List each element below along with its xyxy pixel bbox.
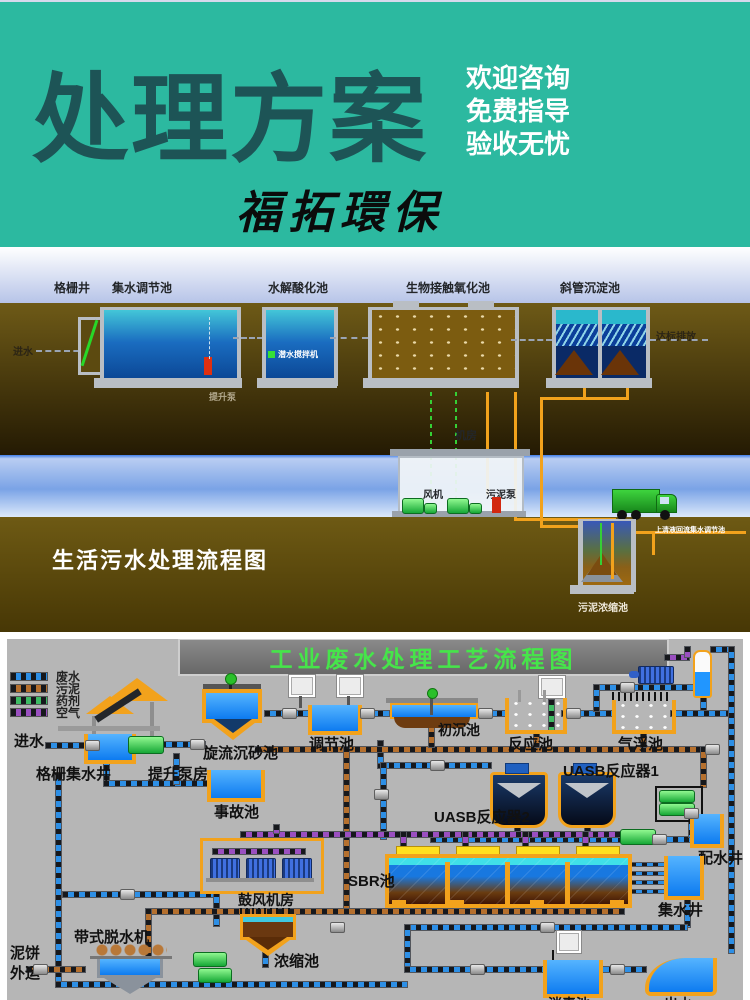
- label-collect-regulate-tank: 集水调节池: [112, 279, 172, 296]
- pipe-segment: [330, 337, 368, 339]
- sbr-leg: [450, 900, 464, 907]
- diagram1-title: 生活污水处理流程图: [52, 543, 268, 575]
- tube-media: [556, 324, 600, 346]
- collect-regulate-tank: [100, 307, 241, 386]
- label-inclined-tube-tank: 斜管沉淀池: [560, 279, 620, 296]
- pipe-segment: [233, 337, 263, 339]
- roof-slab: [390, 449, 530, 456]
- domestic-sewage-diagram: 格栅井 集水调节池 水解酸化池 生物接触氧化池 斜管沉淀池 进水 达标排放 提升…: [0, 247, 750, 632]
- sludge-pump-device: [492, 497, 501, 513]
- pipe-segment: [380, 762, 387, 840]
- sludge-feed-pump: [193, 952, 227, 967]
- header-banner: 处理方案 欢迎咨询 免费指导 验收无忧 福拓環保: [0, 0, 750, 247]
- sbr-divider: [565, 862, 570, 904]
- slogan-line: 免费指导: [466, 95, 570, 128]
- label-inlet: 进水: [14, 730, 44, 751]
- valve: [652, 834, 667, 845]
- collecting-well: [664, 856, 704, 900]
- compressor-nose: [629, 671, 639, 678]
- mixer-unit: [336, 674, 364, 698]
- dewaterer-bowl: [97, 959, 163, 978]
- uasb-cone: [565, 783, 609, 798]
- pipe-segment: [62, 891, 217, 898]
- pipe-segment: [511, 339, 552, 341]
- pipe-segment: [273, 824, 280, 834]
- saturation-column: [693, 650, 712, 698]
- lift-pump-device: [204, 357, 212, 375]
- uasb-cone: [497, 783, 541, 798]
- tank-base: [570, 585, 634, 594]
- label-cyclone: 旋流沉砂池: [203, 742, 278, 763]
- pipe-segment: [209, 317, 210, 359]
- label-accident-tank: 事故池: [214, 801, 259, 822]
- label-bio-contact-tank: 生物接触氧化池: [406, 279, 490, 296]
- tank-base: [257, 378, 337, 388]
- valve: [610, 964, 625, 975]
- truck-wheel: [660, 510, 670, 520]
- sludge-funnel: [555, 350, 593, 375]
- valve: [360, 708, 375, 719]
- legend-label: 空气: [56, 704, 80, 721]
- slogan-line: 验收无忧: [466, 128, 570, 161]
- label-flotation-tank: 气浮池: [618, 733, 663, 754]
- tank-post: [468, 301, 494, 308]
- pipe-segment: [45, 742, 89, 749]
- uasb-cap: [505, 763, 529, 774]
- valve: [374, 789, 389, 800]
- label-outflow: 出水: [664, 994, 692, 1000]
- page-title: 处理方案: [32, 40, 428, 181]
- accident-tank: [207, 770, 265, 802]
- valve: [540, 922, 555, 933]
- air-compressor: [638, 666, 674, 684]
- valve: [566, 708, 581, 719]
- feed-pump: [620, 829, 656, 845]
- flotation-tank: [612, 700, 676, 734]
- valve: [620, 682, 635, 693]
- pipe-segment: [145, 908, 625, 915]
- valve: [120, 889, 135, 900]
- sbr-leg: [610, 900, 624, 907]
- label-reaction-tank: 反应池: [508, 733, 553, 754]
- water-surface: [556, 310, 600, 324]
- label-inlet: 进水: [13, 343, 33, 358]
- diagram2-title-bar: 工业废水处理工艺流程图: [178, 638, 669, 676]
- sludge-funnel: [601, 350, 639, 375]
- platform-beam: [58, 726, 160, 731]
- pipe-segment: [630, 889, 666, 894]
- tank-base: [94, 378, 242, 388]
- blower-unit: [282, 858, 312, 880]
- sediment-cell: [598, 307, 650, 386]
- valve: [190, 739, 205, 750]
- cyclone-funnel-inner: [214, 719, 252, 733]
- dosing-cabinet: [556, 930, 582, 954]
- label-thickener: 浓缩池: [274, 950, 319, 971]
- pipe-segment: [611, 523, 614, 579]
- industrial-wastewater-diagram: 工业废水处理工艺流程图 废水 污泥 药剂 空气: [0, 632, 750, 1000]
- motor-knob: [427, 688, 438, 699]
- sbr-leg: [530, 900, 544, 907]
- blower-base: [206, 878, 314, 882]
- motor-knob: [225, 673, 237, 685]
- pipe-segment: [630, 880, 666, 885]
- distribution-well: [690, 814, 724, 848]
- label-collecting-well: 集水井: [658, 899, 703, 920]
- label-machine-room: 机房: [455, 427, 477, 443]
- valve: [330, 922, 345, 933]
- frame-border: [0, 632, 7, 1000]
- tube-media: [602, 324, 646, 346]
- cyclone-tank: [202, 689, 262, 723]
- pipe-segment: [650, 339, 708, 341]
- brand-name: 福拓環保: [236, 176, 444, 241]
- valve: [470, 964, 485, 975]
- air-line-swatch: [10, 708, 48, 717]
- label-fan: 风机: [423, 486, 443, 501]
- blower-unit: [469, 503, 482, 514]
- label-mud-cake-1: 泥饼: [10, 942, 40, 963]
- label-blower-room: 鼓风机房: [238, 890, 294, 910]
- valve: [85, 740, 100, 751]
- disinfection-tank: [543, 960, 603, 998]
- roller-belt: [95, 942, 167, 957]
- hydrolysis-tank: [262, 307, 338, 386]
- regulating-tank: [308, 705, 362, 735]
- poster: 处理方案 欢迎咨询 免费指导 验收无忧 福拓環保 格栅井 集水调节池 水解酸化池…: [0, 0, 750, 1000]
- label-lift-pump: 提升泵: [209, 390, 236, 403]
- label-pump-house: 提升泵房: [148, 763, 208, 784]
- pipe-segment: [600, 523, 602, 565]
- pipe-segment: [630, 871, 666, 876]
- divider: [0, 0, 750, 2]
- label-distribution-well: 配水井: [698, 847, 743, 868]
- outflow-basin: [645, 958, 717, 996]
- pipe-segment: [670, 710, 732, 717]
- label-sbr: SBR池: [348, 870, 395, 891]
- pipe-segment: [593, 684, 600, 712]
- label-hydrolysis-tank: 水解酸化池: [268, 279, 328, 296]
- sbr-leg: [392, 900, 406, 907]
- pipe-segment: [630, 862, 666, 867]
- label-uasb1: UASB反应器1: [563, 760, 659, 781]
- valve: [478, 708, 493, 719]
- valve: [33, 964, 48, 975]
- pipe-segment: [728, 646, 735, 954]
- label-uasb2: UASB反应器2: [434, 806, 530, 827]
- reaction-tank: [505, 698, 567, 734]
- pipe-segment: [593, 684, 697, 691]
- bio-contact-tank: [368, 307, 519, 386]
- pipe-segment: [540, 397, 629, 400]
- tank-post: [393, 301, 419, 308]
- sludge-line-swatch: [10, 684, 48, 693]
- diagram2-title: 工业废水处理工艺流程图: [270, 640, 578, 674]
- dewaterer-funnel: [104, 978, 156, 994]
- sludge-feed-pump: [198, 968, 232, 983]
- pipe-segment: [540, 397, 543, 527]
- tank-base: [546, 378, 652, 388]
- blower-unit: [402, 498, 424, 514]
- blower-unit: [246, 858, 276, 880]
- label-regulating-tank: 调节池: [309, 733, 354, 754]
- tank-base: [363, 378, 519, 388]
- label-grid-well: 格栅集水井: [36, 763, 111, 784]
- pipe-segment: [684, 646, 691, 658]
- slogan-list: 欢迎咨询 免费指导 验收无忧: [466, 62, 570, 161]
- mixer-icon: [268, 351, 275, 358]
- recycle-pump: [659, 790, 695, 803]
- pipe-segment: [55, 773, 62, 987]
- mixer-unit: [288, 674, 316, 698]
- blower-unit: [447, 498, 469, 514]
- pipe-segment: [404, 924, 411, 970]
- sediment-cell: [552, 307, 604, 386]
- chemical-line-swatch: [10, 696, 48, 705]
- water-surface: [602, 310, 646, 324]
- sbr-tank: [385, 854, 632, 908]
- valve: [282, 708, 297, 719]
- sbr-divider: [505, 862, 510, 904]
- sbr-divider: [445, 862, 450, 904]
- blower-unit: [210, 858, 240, 880]
- truck-window: [660, 497, 669, 504]
- label-supernatant-return: 上清液回流集水调节池: [655, 525, 725, 535]
- valve: [430, 760, 445, 771]
- label-disinfection-tank: 消毒池: [548, 994, 590, 1000]
- valve: [705, 744, 720, 755]
- label-sludge-pump: 污泥泵: [486, 486, 516, 501]
- frame-border: [743, 632, 750, 1000]
- frame-border: [0, 632, 750, 639]
- mixer-stem: [299, 696, 302, 708]
- thickener-funnel-inner: [249, 937, 287, 950]
- lift-pump-device: [128, 736, 164, 754]
- blower-unit: [424, 503, 437, 514]
- label-grid-well: 格栅井: [54, 279, 90, 296]
- label-submersible-mixer: 潜水搅拌机: [278, 349, 318, 360]
- wastewater-line-swatch: [10, 672, 48, 681]
- label-sludge-thickener: 污泥浓缩池: [578, 599, 628, 614]
- legend-item: 空气: [10, 706, 80, 718]
- label-primary-tank: 初沉池: [438, 720, 480, 740]
- legend: 废水 污泥 药剂 空气: [10, 670, 80, 718]
- valve: [684, 808, 699, 819]
- slogan-line: 欢迎咨询: [466, 62, 570, 95]
- sludge-thickener-tank: [578, 519, 636, 592]
